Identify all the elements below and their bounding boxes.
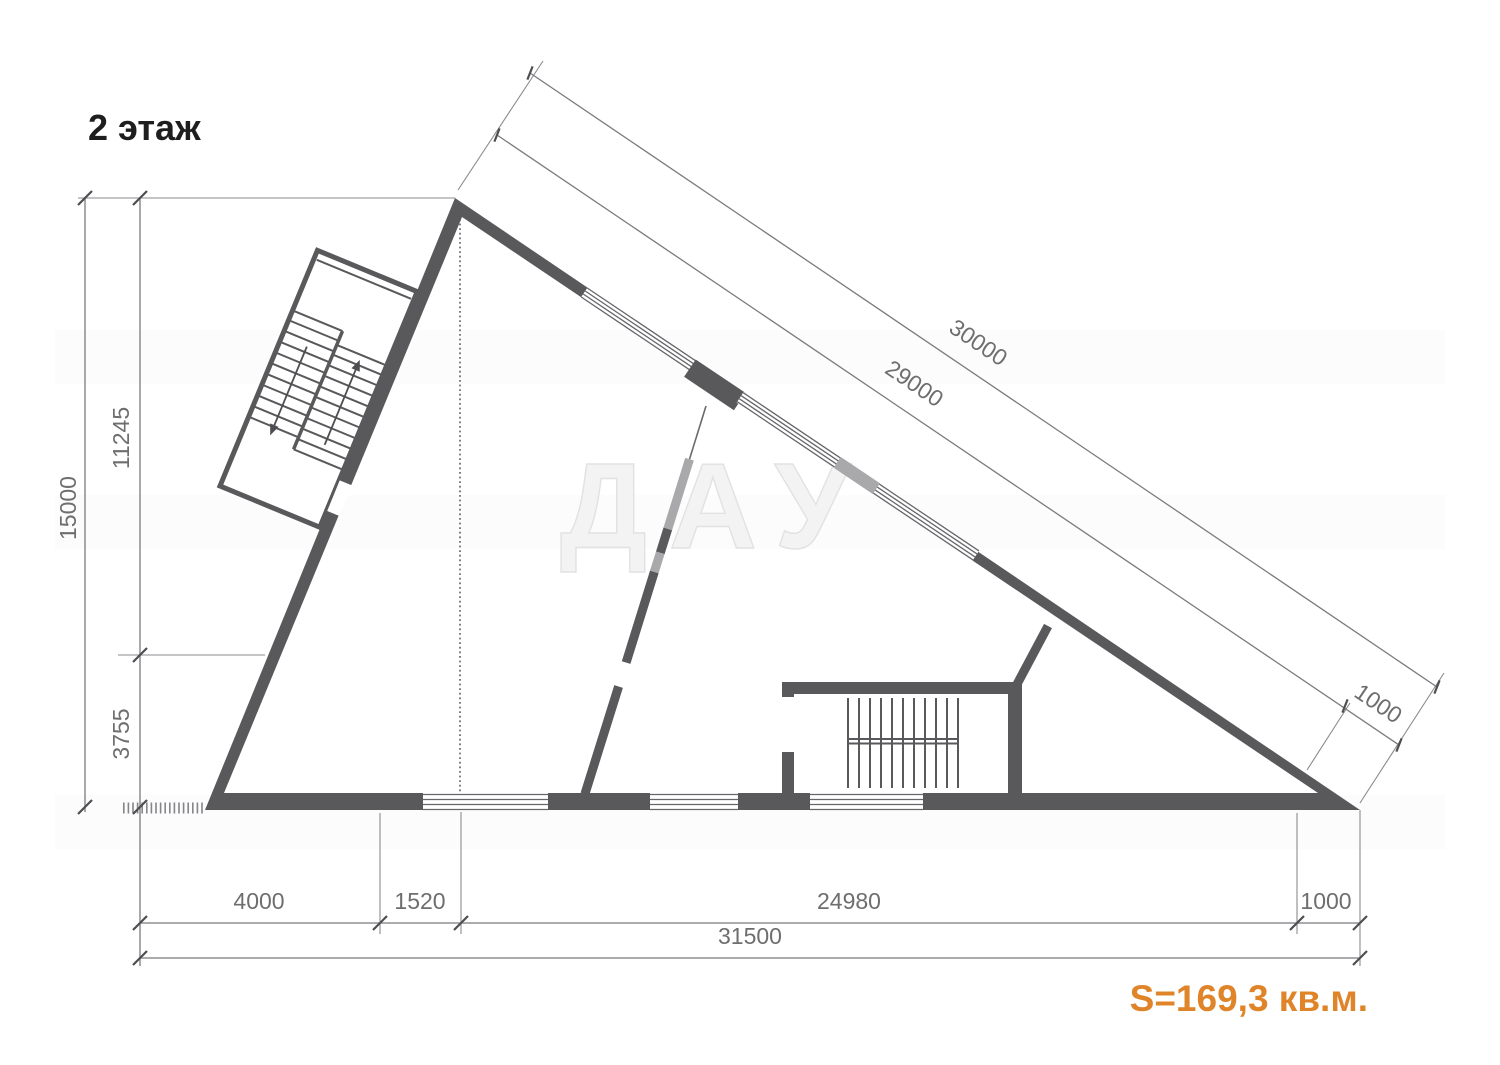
dim-left-lower-label: 3755 <box>108 708 134 759</box>
dim-hyp-end-label: 1000 <box>1350 678 1407 728</box>
floor-plan-page: ДАУ 2 этаж <box>0 0 1500 1065</box>
floor-plan-canvas: ДАУ 2 этаж <box>0 0 1500 1065</box>
dim-bottom-3-label: 24980 <box>817 888 881 914</box>
bottom-windows <box>423 793 923 812</box>
dim-bottom-2-label: 1520 <box>394 888 445 914</box>
dim-left-total-label: 15000 <box>55 476 81 540</box>
dim-bottom-1-label: 4000 <box>233 888 284 914</box>
page-title: 2 этаж <box>88 107 201 148</box>
stair-room-left-wall <box>782 682 794 697</box>
stair-treads <box>848 698 958 788</box>
dim-bottom-4-label: 1000 <box>1300 888 1351 914</box>
dim-left-upper-label: 11245 <box>108 407 134 469</box>
stair-room-left-wall <box>782 752 794 794</box>
window <box>423 793 548 812</box>
window <box>650 793 738 812</box>
stair-room-top-wall <box>782 682 1022 694</box>
dim-bottom-total-label: 31500 <box>718 923 782 949</box>
lower-stairwell <box>782 682 1022 794</box>
stair-room-right-wall <box>1008 682 1022 794</box>
window <box>810 793 923 812</box>
interior-partition-2 <box>1015 626 1048 688</box>
area-label: S=169,3 кв.м. <box>1130 978 1368 1019</box>
